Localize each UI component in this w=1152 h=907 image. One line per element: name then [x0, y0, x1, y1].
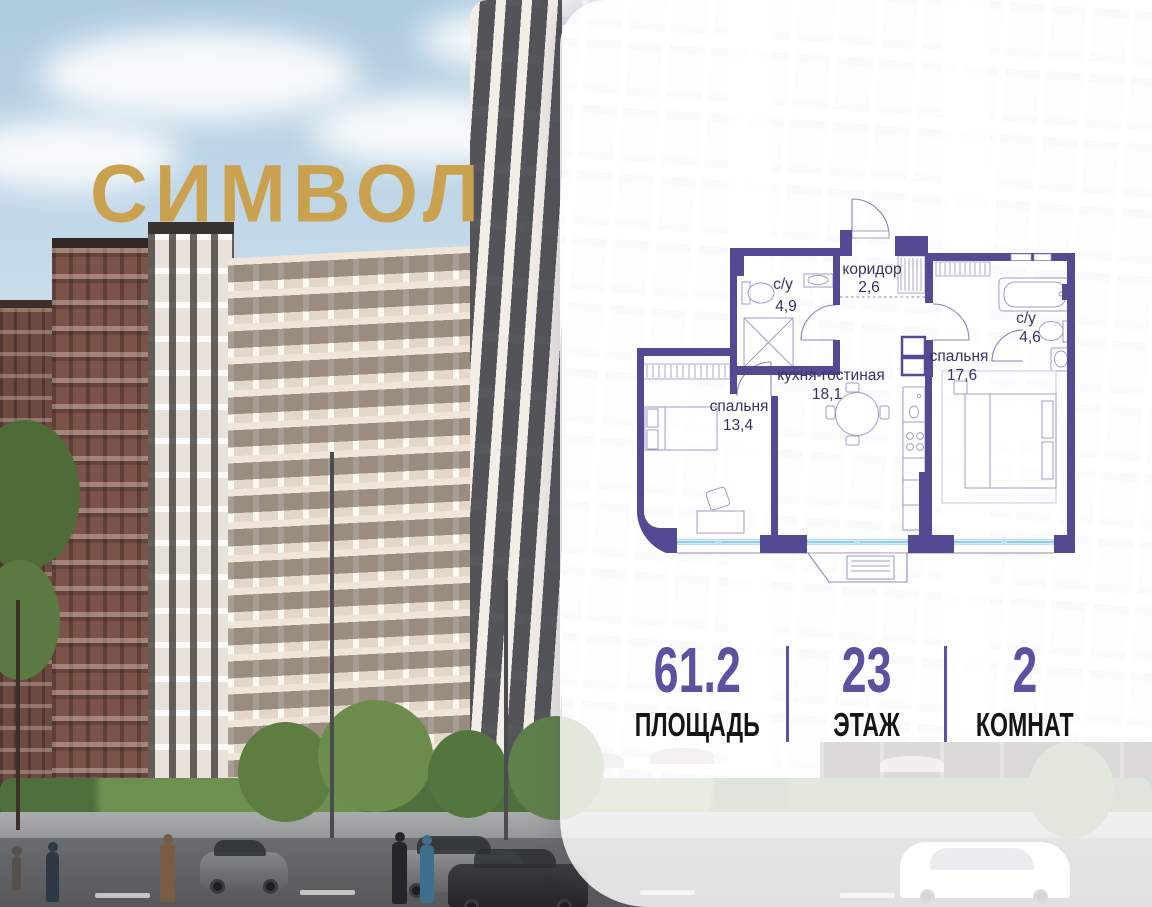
- stat-area-label: ПЛОЩАДЬ: [635, 708, 760, 742]
- room-label: кухня-гостиная: [777, 367, 885, 384]
- room-area: 17,6: [947, 367, 977, 384]
- room-label: с/у: [773, 276, 793, 293]
- room-area: 13,4: [723, 417, 754, 434]
- pedestrian: [160, 844, 175, 902]
- window-glazing: [677, 539, 1054, 545]
- stat-floor-label: ЭТАЖ: [834, 708, 901, 742]
- stat-rooms-value: 2: [1012, 640, 1037, 700]
- stat-rooms: 2 КОМНАТ: [947, 640, 1102, 742]
- tree: [428, 730, 508, 818]
- utility-shaft: [902, 358, 925, 375]
- car: [200, 852, 288, 888]
- room-label: коридор: [842, 261, 901, 278]
- pedestrian: [420, 845, 434, 903]
- room-area: 2,6: [858, 279, 880, 296]
- room-label: спальня: [930, 348, 989, 365]
- brand-logo: СИМВОЛ: [90, 147, 490, 241]
- pedestrian: [46, 852, 59, 902]
- tree-trunk: [16, 600, 20, 830]
- stat-area-value: 61.2: [654, 640, 741, 700]
- tree: [318, 700, 433, 812]
- lane-marking: [95, 893, 150, 898]
- utility-shaft: [902, 337, 925, 356]
- pedestrian: [12, 856, 21, 890]
- car: [448, 864, 588, 907]
- stat-rooms-label: КОМНАТ: [976, 708, 1074, 742]
- stat-floor: 23 ЭТАЖ: [789, 640, 944, 742]
- ac-unit: [847, 556, 894, 579]
- apartment-listing-card[interactable]: БАРБЕРШОП СИМВОЛ: [0, 0, 1152, 907]
- street-lamp: [330, 452, 334, 838]
- cloud: [40, 30, 360, 120]
- floor-plan: коридор 2,6 с/у 4,9 кухня-гостиная 18,1 …: [620, 190, 1090, 590]
- stat-floor-value: 23: [842, 640, 892, 700]
- room-area: 18,1: [812, 386, 842, 403]
- apartment-stats: 61.2 ПЛОЩАДЬ 23 ЭТАЖ 2 КОМНАТ: [608, 640, 1102, 750]
- room-label: с/у: [1016, 310, 1036, 327]
- street-lamp: [504, 580, 508, 840]
- room-area: 4,9: [775, 298, 797, 315]
- room-label: спальня: [710, 398, 769, 415]
- tree: [238, 722, 333, 822]
- room-area: 4,6: [1019, 329, 1041, 346]
- pedestrian: [392, 842, 407, 904]
- lane-marking: [300, 890, 355, 895]
- stat-area: 61.2 ПЛОЩАДЬ: [608, 640, 786, 742]
